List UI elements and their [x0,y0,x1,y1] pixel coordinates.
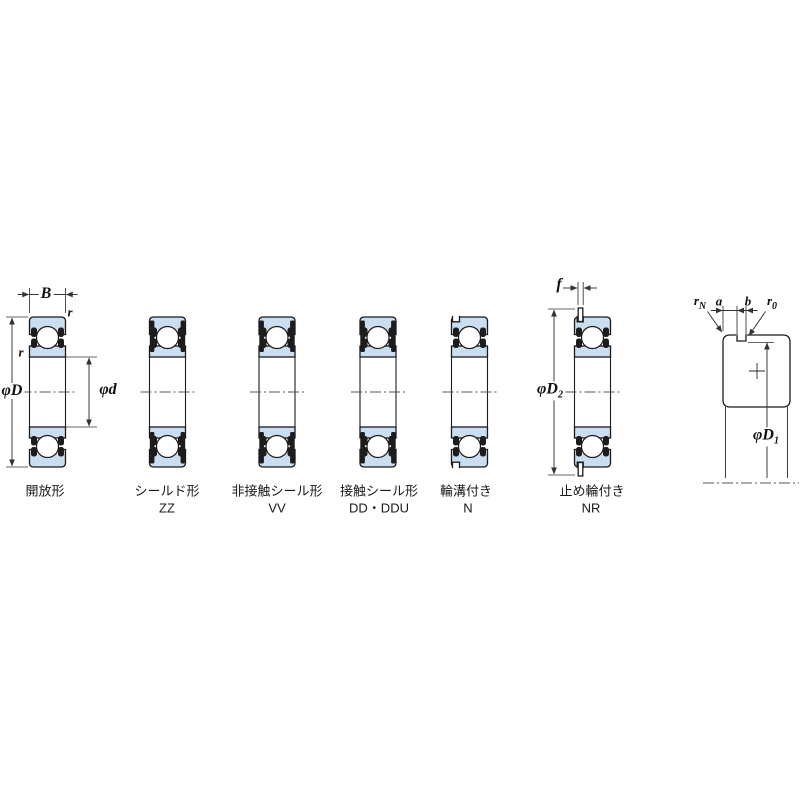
dim-label-groove-a: a [716,295,723,308]
dim-label-width-B: B [39,286,54,302]
bearing-contact-seal-dd [351,317,405,467]
caption-code-n: N [463,502,472,515]
dim-label-chamfer-r-outer: r [67,306,72,319]
dim-label-groove-b: b [745,295,752,308]
caption-noncontact-seal: 非接触シール形 [231,485,322,498]
bearing-snapring-nr [566,308,620,476]
caption-open-type: 開放形 [25,485,64,498]
dim-label-snapring-width-f: f [556,277,561,293]
bearing-snapring-groove-n [443,316,497,469]
caption-code-nr: NR [582,502,601,515]
dim-label-outer-diameter: φD [0,383,24,399]
dim-label-bore-diameter: φd [99,382,116,398]
bearing-types-figure: B r r φD φd f φD2 a b rN r0 φD1 開放形 シールド… [0,0,800,800]
bearing-diagram-canvas [0,0,800,800]
caption-shielded-type: シールド形 [134,485,199,498]
dim-label-snapring-diameter: φD2 [535,381,565,400]
dim-label-groove-diameter: φD1 [751,427,781,446]
caption-code-vv: VV [268,502,285,515]
snapring-groove-detail [703,306,799,483]
dim-label-chamfer-r-inner: r [18,346,23,359]
bearing-shielded-zz [141,317,195,467]
caption-snapring-groove: 輪溝付き [440,485,492,498]
caption-code-zz: ZZ [159,502,175,515]
bearing-open-type [21,317,75,467]
dim-label-groove-r0: r0 [767,294,777,312]
caption-with-snapring: 止め輪付き [559,485,624,498]
caption-code-dd-ddu: DD・DDU [349,502,409,515]
bearing-noncontact-seal-vv [250,317,304,467]
dim-label-groove-rN: rN [694,294,706,312]
caption-contact-seal: 接触シール形 [340,485,418,498]
